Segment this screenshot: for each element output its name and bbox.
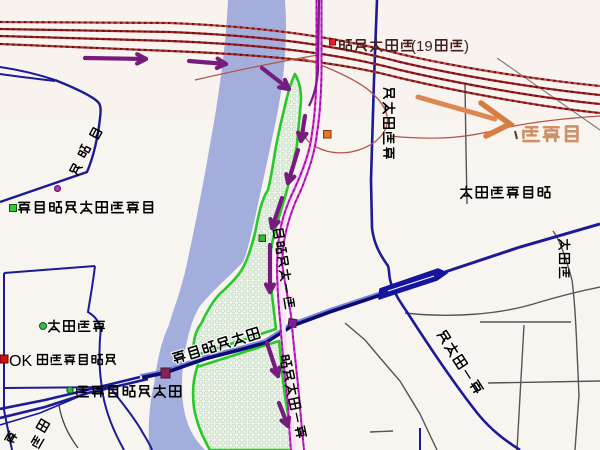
svg-text:(19: (19 bbox=[411, 38, 433, 55]
svg-text:OK: OK bbox=[9, 353, 32, 370]
svg-text:): ) bbox=[464, 38, 469, 55]
